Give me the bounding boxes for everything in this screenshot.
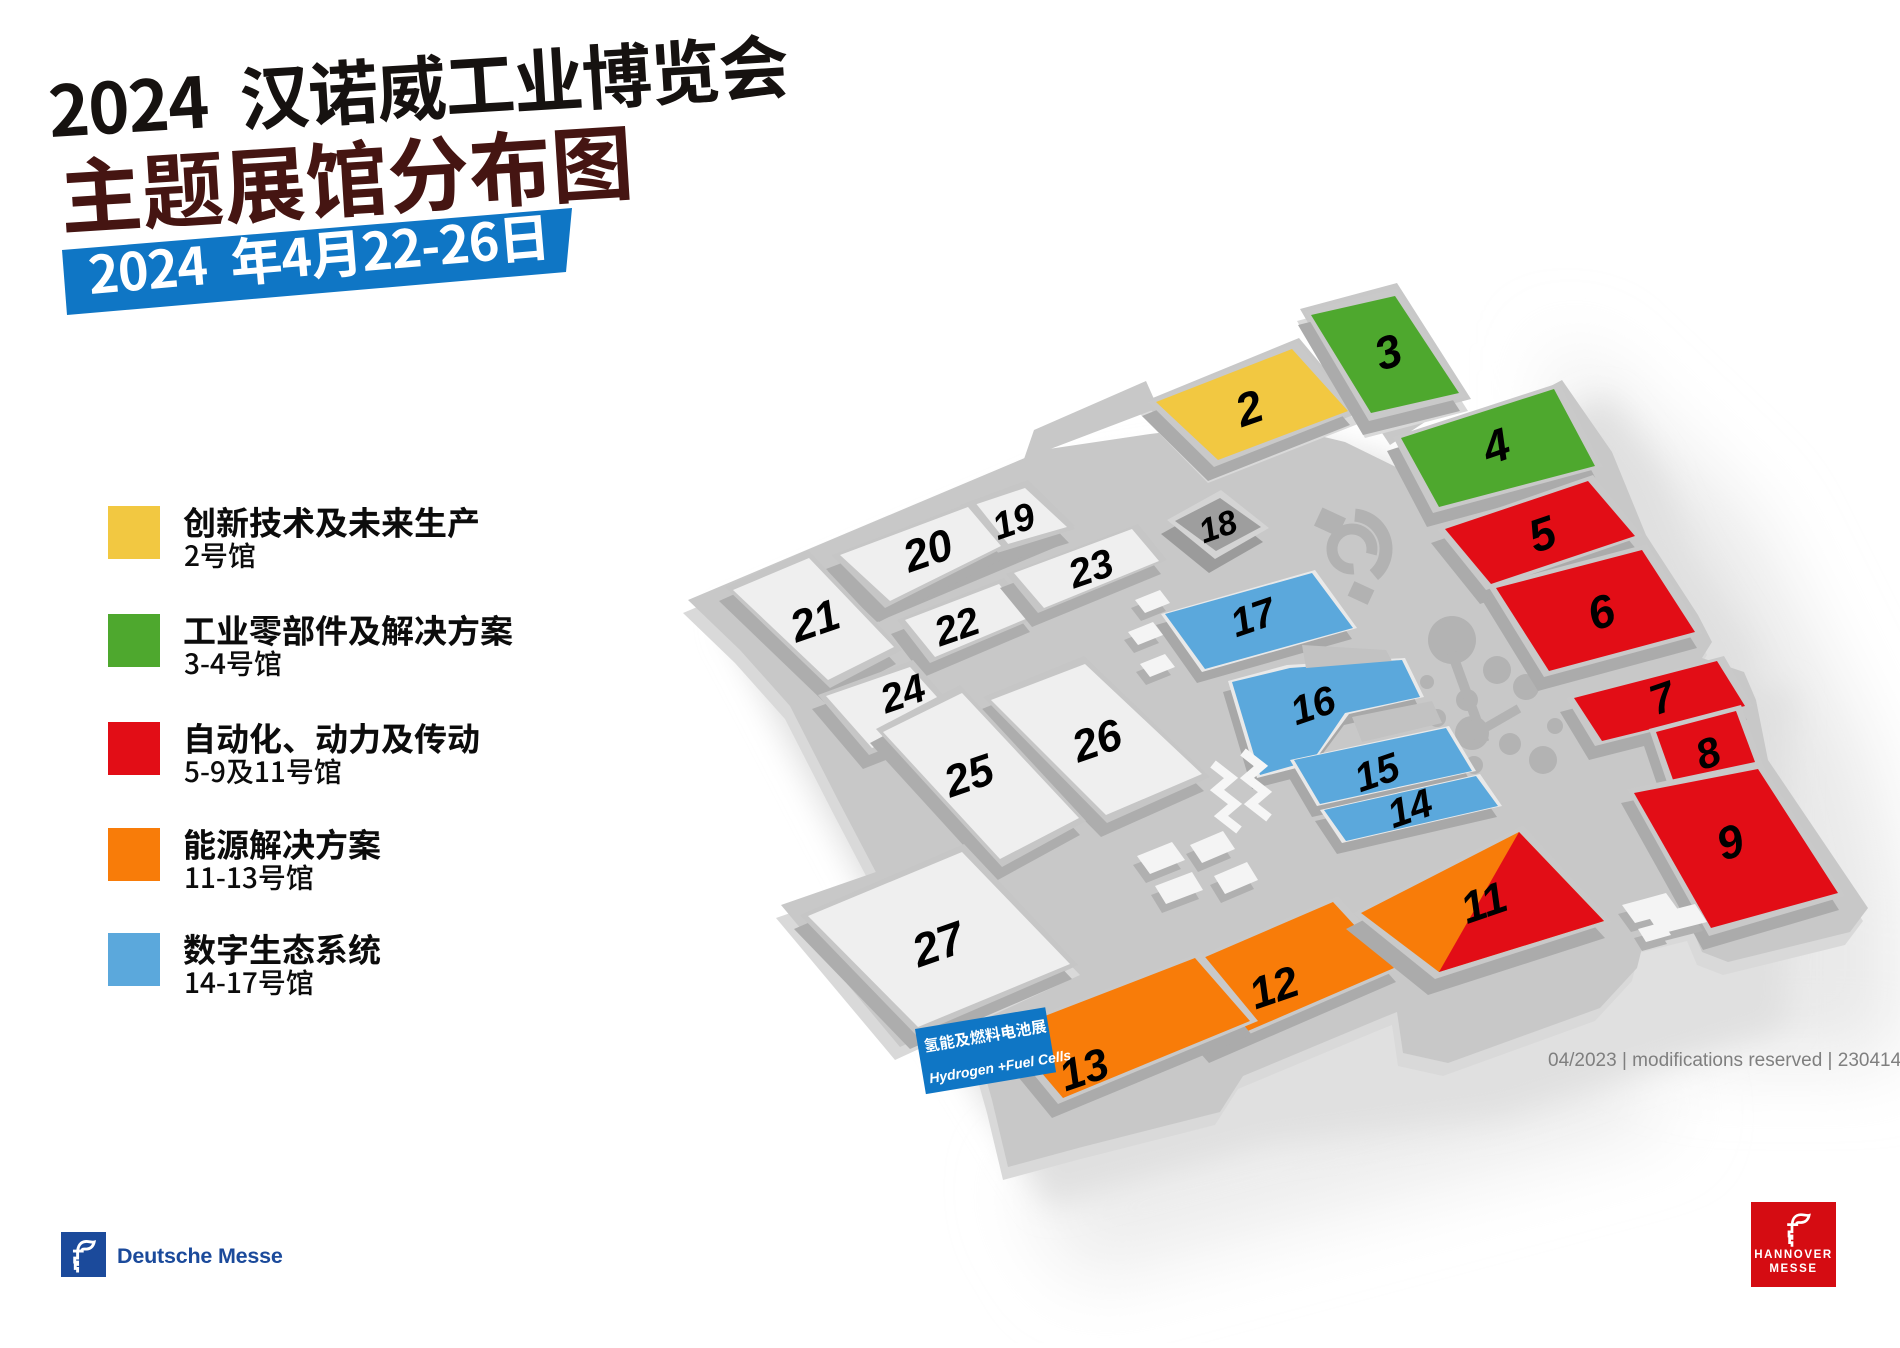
svg-text:HANNOVER: HANNOVER bbox=[1754, 1249, 1833, 1261]
svg-text:Deutsche Messe: Deutsche Messe bbox=[117, 1244, 283, 1268]
svg-text:04/2023 | modifications reserv: 04/2023 | modifications reserved | 23041… bbox=[1548, 1050, 1900, 1071]
svg-text:MESSE: MESSE bbox=[1769, 1263, 1817, 1275]
